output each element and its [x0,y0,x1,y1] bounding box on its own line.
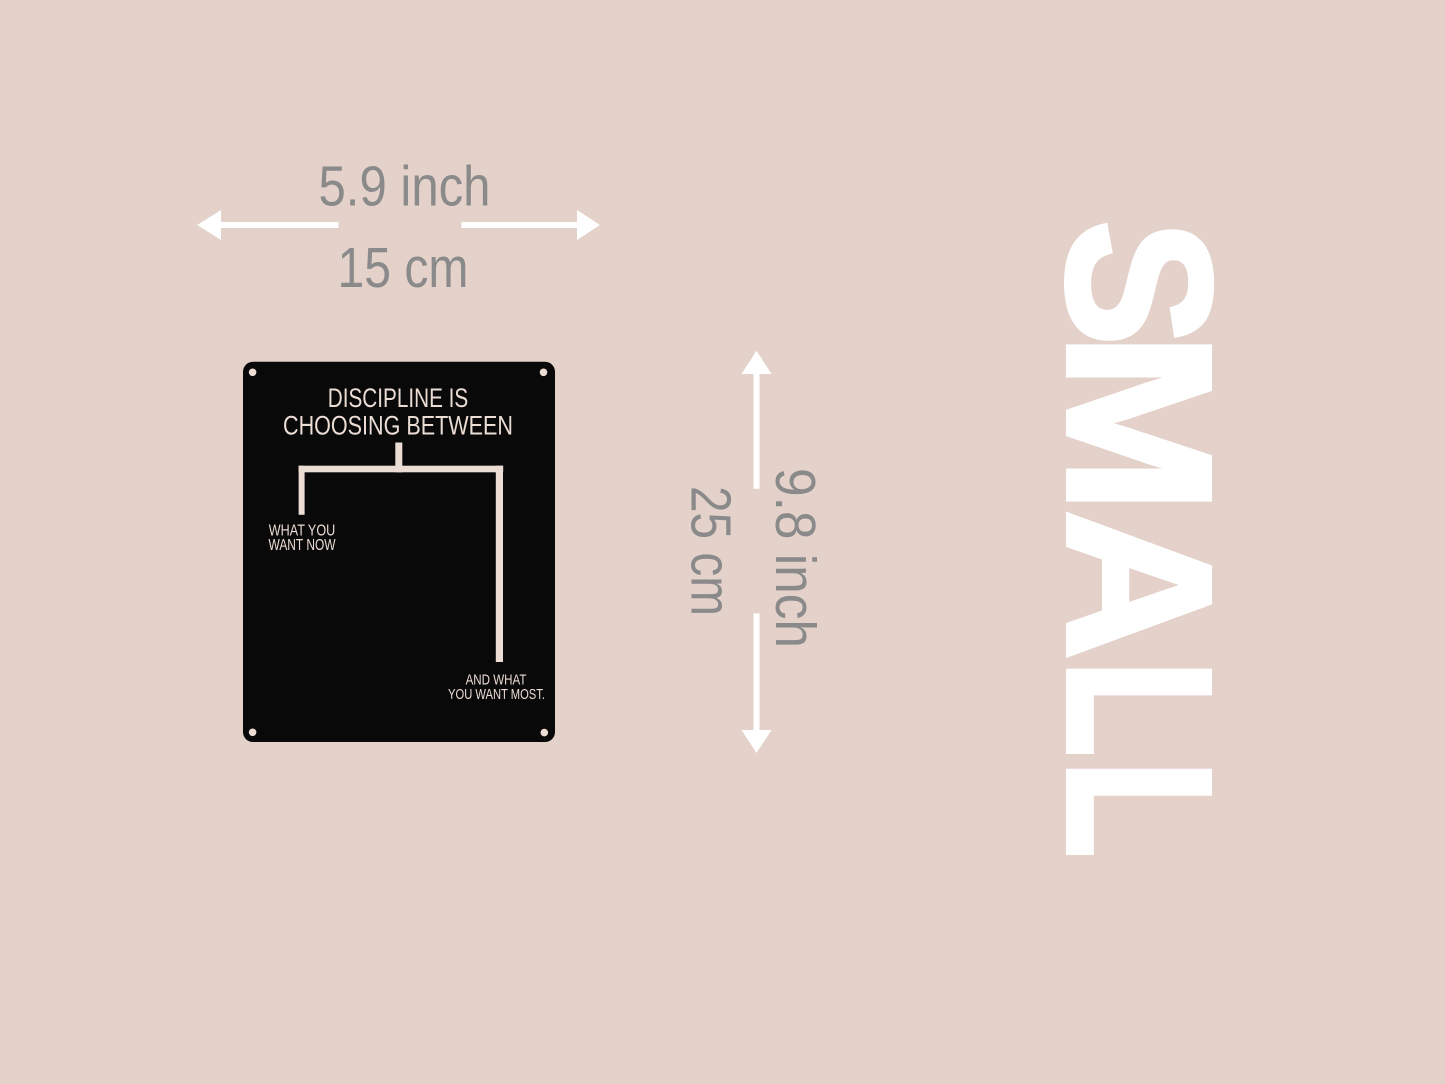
svg-text:L: L [1025,660,1254,757]
svg-text:WANT NOW: WANT NOW [269,537,337,554]
svg-text:S: S [1025,220,1254,346]
svg-text:YOU WANT MOST.: YOU WANT MOST. [448,686,545,703]
svg-text:DISCIPLINE IS: DISCIPLINE IS [328,383,469,413]
svg-text:9.8 inch: 9.8 inch [763,468,827,648]
svg-text:5.9 inch: 5.9 inch [319,154,491,218]
svg-text:A: A [1025,510,1254,660]
svg-text:CHOOSING BETWEEN: CHOOSING BETWEEN [283,411,513,441]
svg-text:M: M [1025,333,1254,514]
svg-text:25 cm: 25 cm [679,486,743,616]
svg-text:L: L [1025,760,1254,858]
svg-text:15 cm: 15 cm [338,236,469,300]
